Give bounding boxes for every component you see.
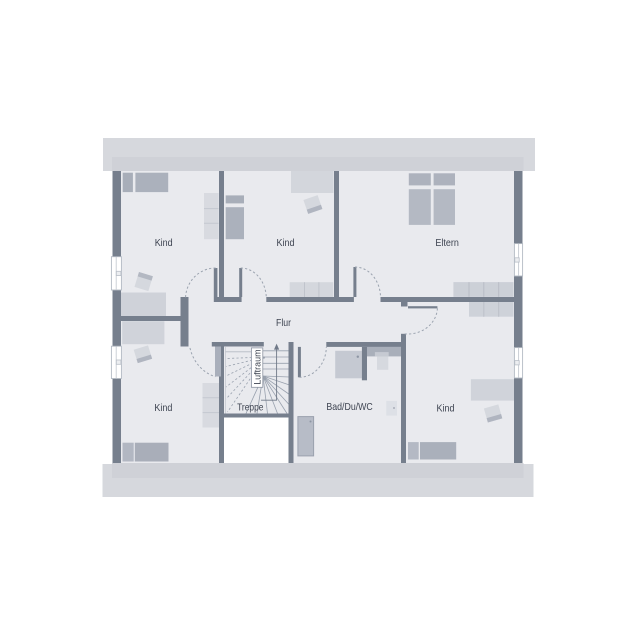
svg-text:Flur: Flur — [276, 318, 291, 329]
svg-text:Eltern: Eltern — [435, 238, 459, 249]
svg-text:Kind: Kind — [154, 403, 172, 414]
svg-text:Bad/Du/WC: Bad/Du/WC — [326, 402, 373, 413]
svg-text:Kind: Kind — [155, 238, 173, 249]
svg-text:Kind: Kind — [437, 403, 455, 414]
svg-text:Treppe: Treppe — [237, 402, 264, 413]
svg-text:Luftraum: Luftraum — [251, 349, 262, 385]
svg-text:Kind: Kind — [277, 238, 295, 249]
